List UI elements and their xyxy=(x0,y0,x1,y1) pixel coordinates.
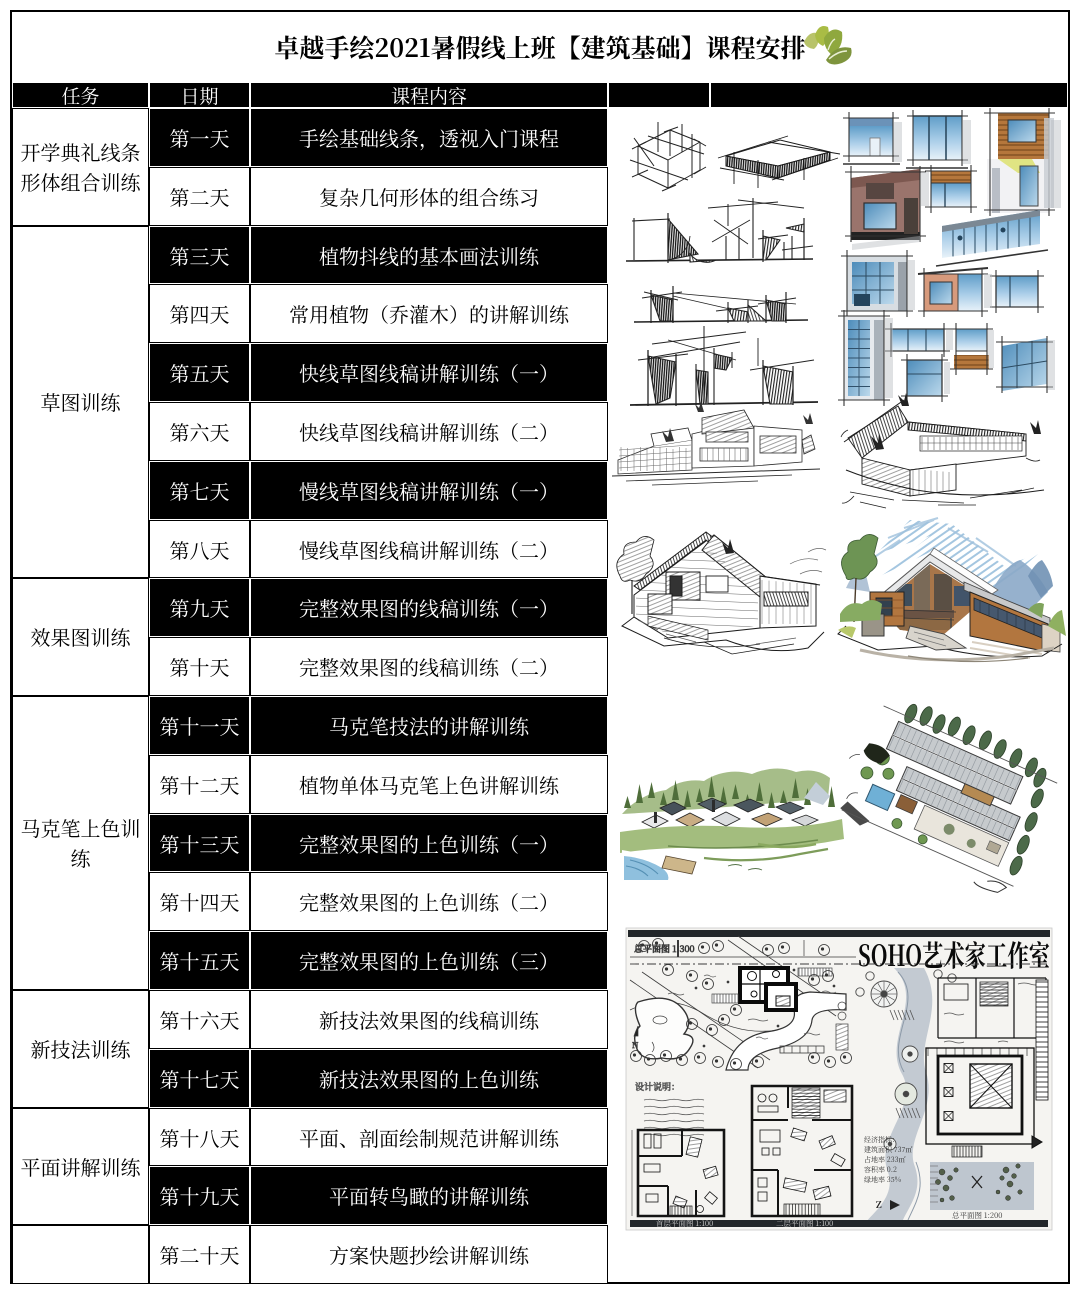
svg-text:首层平面图 1:100: 首层平面图 1:100 xyxy=(656,1218,713,1229)
svg-text:设计说明：: 设计说明： xyxy=(635,1080,680,1093)
svg-text:二层平面图 1:100: 二层平面图 1:100 xyxy=(776,1218,833,1229)
svg-text:绿地率 35%: 绿地率 35% xyxy=(864,1175,902,1185)
svg-text:SOHO艺术家工作室: SOHO艺术家工作室 xyxy=(858,934,1050,975)
svg-text:经济指标：: 经济指标： xyxy=(864,1135,899,1145)
svg-text:总平面图 1:200: 总平面图 1:200 xyxy=(952,1210,1002,1221)
svg-text:占地率 233㎡: 占地率 233㎡ xyxy=(864,1155,906,1165)
svg-text:建筑面积 737㎡: 建筑面积 737㎡ xyxy=(864,1145,912,1155)
svg-text:Z: Z xyxy=(876,1198,882,1211)
svg-text:容积率 0.2: 容积率 0.2 xyxy=(864,1165,897,1175)
svg-text:N: N xyxy=(632,1040,639,1051)
